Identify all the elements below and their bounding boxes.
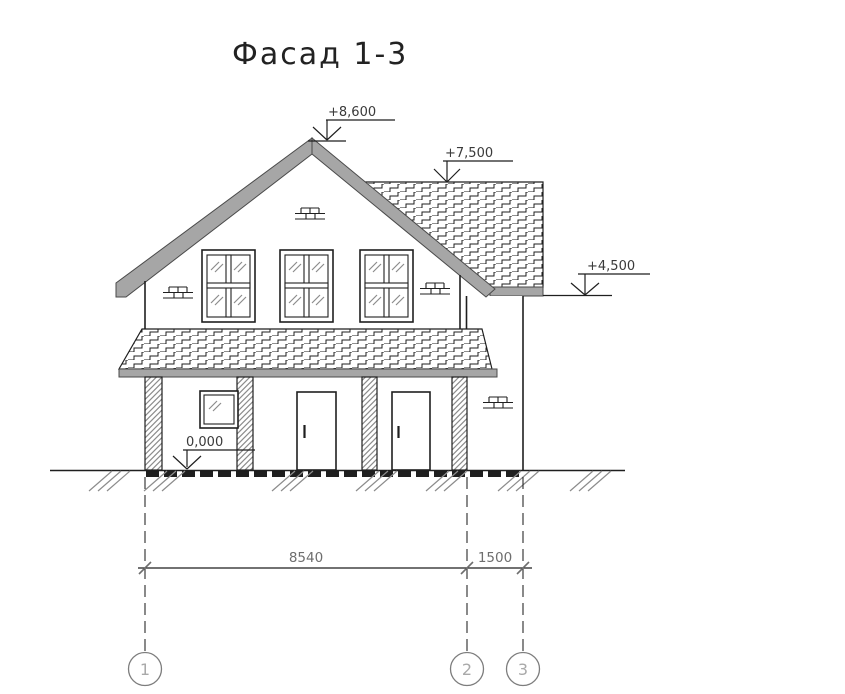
level-label: +4,500 [587,259,635,274]
attic-window-2 [280,250,333,322]
attic-window-3 [360,250,413,322]
level-mark-side-roof: +7,500 [434,146,513,182]
level-label: 0,000 [186,435,223,450]
axis-label-2: 2 [462,660,472,679]
dimension-label-span-1-2: 8540 [289,550,323,566]
entrance-door-2 [392,392,430,470]
facade-drawing-sheet: +8,600 +7,500 +4,500 0,000 8540 1500 1 2… [0,0,845,694]
page-title: Фасад 1-3 [232,37,408,72]
dimension-label-span-2-3: 1500 [478,550,512,566]
elevation-arrow-icon [434,161,460,182]
axis-bubble-1: 1 [129,653,162,686]
axis-bubble-3: 3 [507,653,540,686]
drawing-canvas: +8,600 +7,500 +4,500 0,000 8540 1500 1 2… [0,0,845,694]
elevation-arrow-icon [571,274,599,295]
level-mark-ridge: +8,600 [308,105,395,141]
pent-roof-band [119,369,497,377]
wing-wall [467,296,524,471]
pillar-3 [362,377,377,470]
attic-window-1 [202,250,255,322]
pillar-4 [452,377,467,470]
pent-roof [119,329,497,377]
side-roof-eaves-band [490,287,543,296]
level-label: +7,500 [445,146,493,161]
pillar-2 [237,377,253,470]
level-label: +8,600 [328,105,376,120]
axis-label-3: 3 [518,660,528,679]
pent-roof-hatch [119,329,492,369]
entrance-door-1 [297,392,336,470]
elevation-arrow-icon [313,120,341,140]
pillar-1 [145,377,162,470]
level-mark-eaves: +4,500 [543,259,650,296]
ground-floor-window [200,391,238,428]
elevation-arrow-icon [173,450,201,469]
axis-label-1: 1 [140,660,150,679]
axis-bubble-2: 2 [451,653,484,686]
